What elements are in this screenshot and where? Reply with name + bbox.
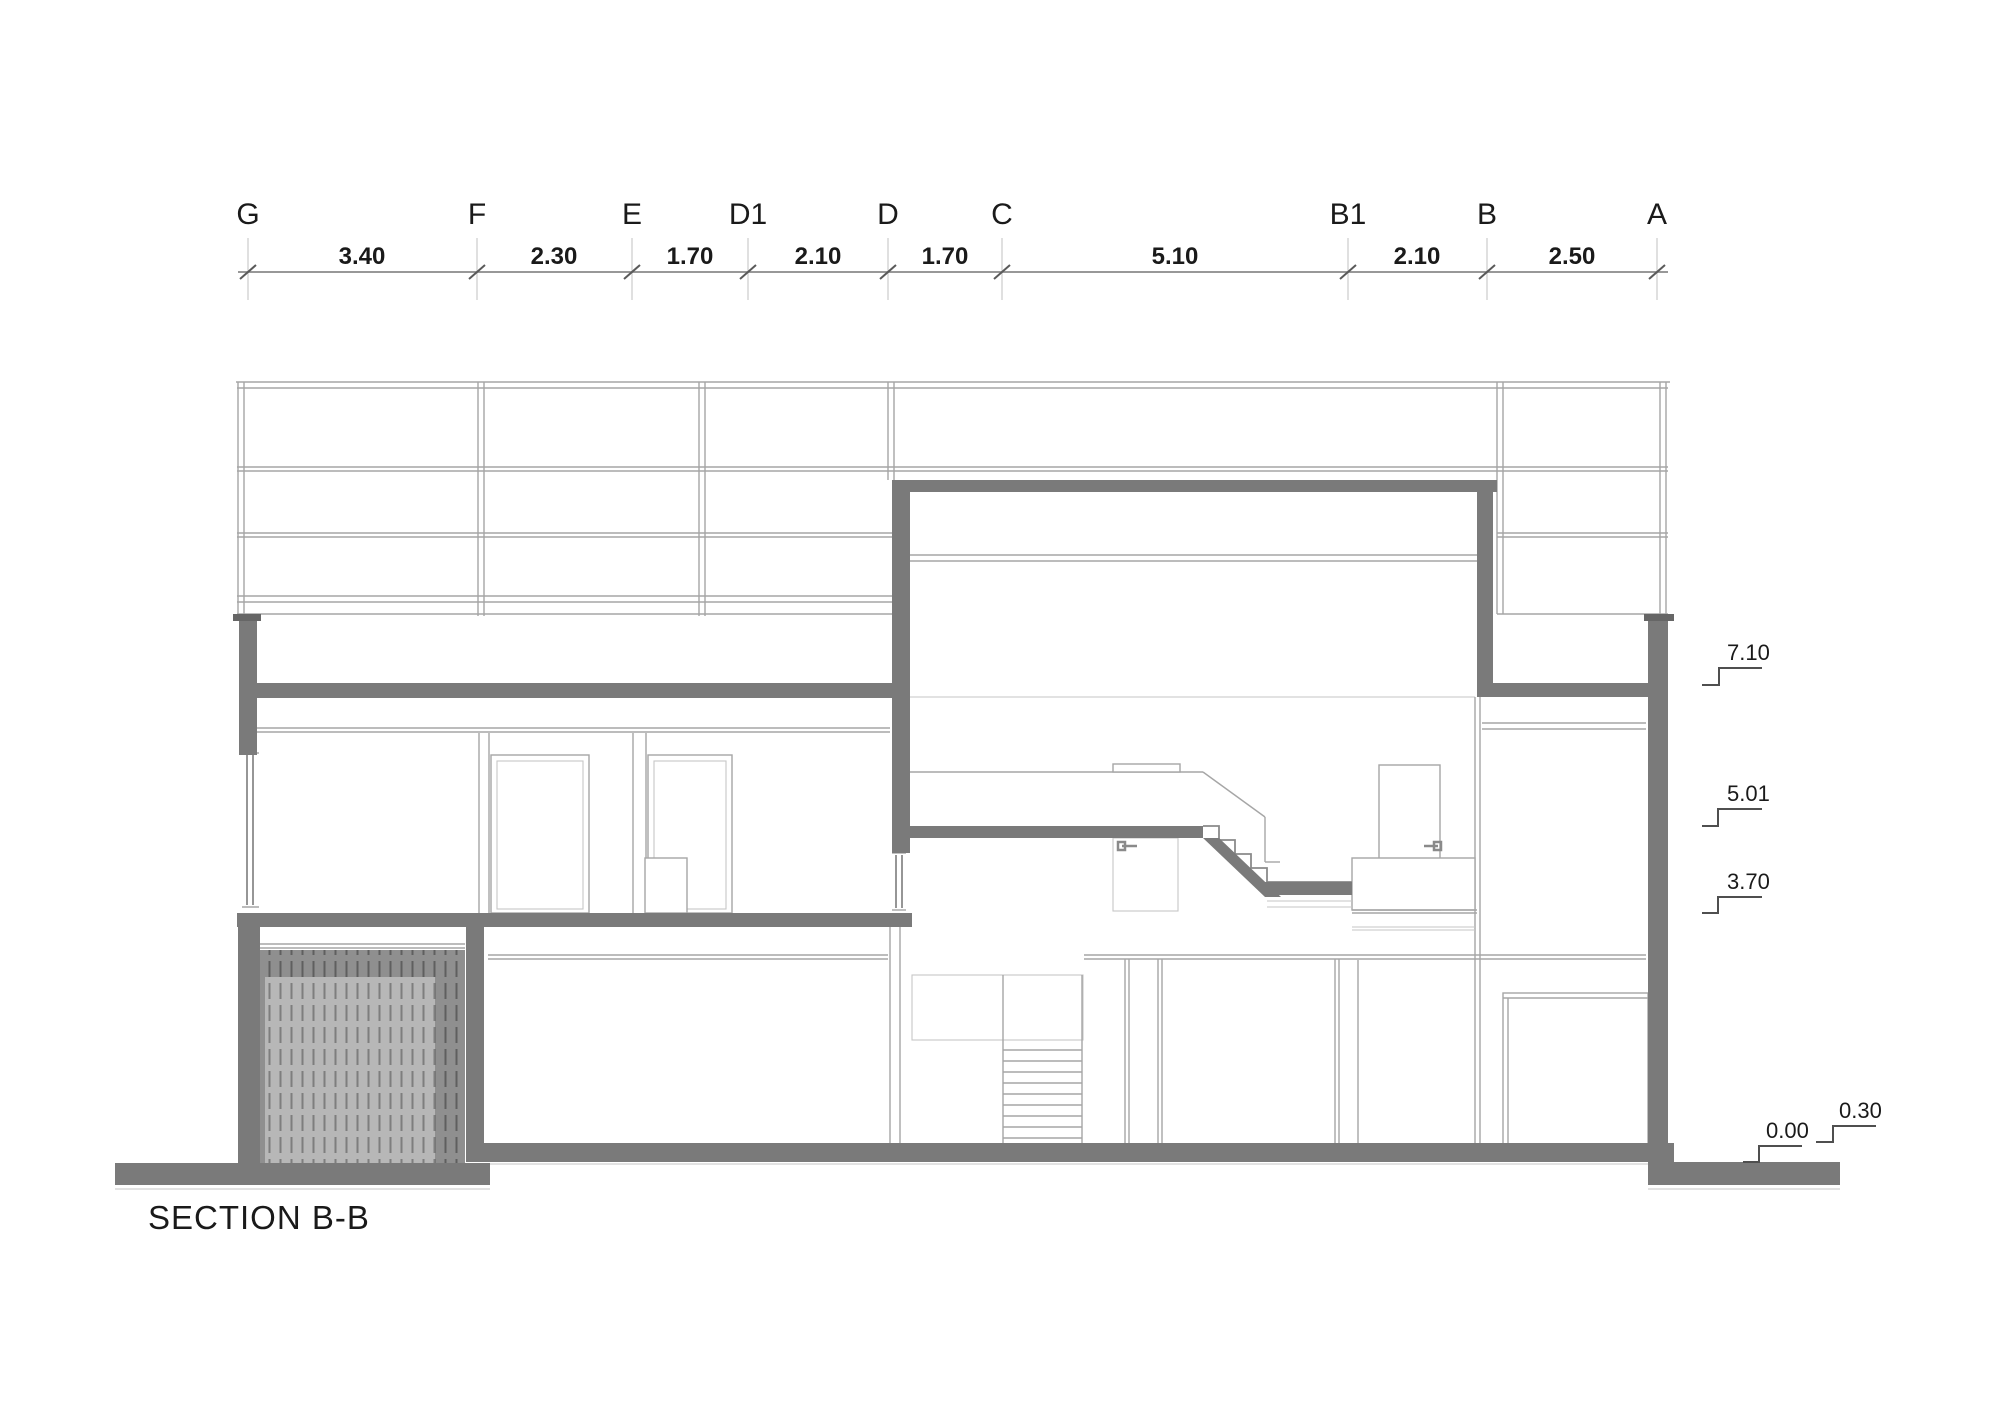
level-marker-000: 0.00 <box>1743 1118 1809 1162</box>
stair-opening <box>912 975 1083 1040</box>
parapet-cap <box>1113 764 1180 772</box>
upper-glazing-grid <box>236 382 1670 618</box>
grid-label-b1: B1 <box>1330 198 1367 231</box>
drawing-title: SECTION B-B <box>148 1199 370 1236</box>
stair-landing-slab <box>1265 882 1352 895</box>
level-marker-370: 3.70 <box>1702 869 1770 913</box>
counter-bedroom <box>1352 858 1475 910</box>
right-parapet-cap <box>1644 614 1674 621</box>
level-value: 0.00 <box>1766 1118 1809 1143</box>
right-parapet-wall <box>1648 621 1668 683</box>
level-value: 3.70 <box>1727 869 1770 894</box>
grid-label-b: B <box>1477 198 1497 231</box>
level-value: 0.30 <box>1839 1098 1882 1123</box>
dim-f-e: 2.30 <box>531 243 578 270</box>
garage-right-wall <box>466 925 484 1143</box>
box-roof-band <box>892 480 1497 492</box>
dim-b-a: 2.50 <box>1549 243 1596 270</box>
dim-d-c: 1.70 <box>922 243 969 270</box>
dim-c-b1: 5.10 <box>1152 243 1199 270</box>
stairs <box>910 764 1352 1143</box>
level-value: 7.10 <box>1727 640 1770 665</box>
level-markers: 7.10 5.01 3.70 0.00 0.30 <box>1702 640 1882 1162</box>
level-marker-710: 7.10 <box>1702 640 1770 685</box>
grid-label-f: F <box>468 198 486 231</box>
grid-label-d1: D1 <box>729 198 767 231</box>
slab-501 <box>910 826 1203 838</box>
grid-label-c: C <box>991 198 1013 231</box>
left-wall-lower <box>238 927 260 1163</box>
garage-wall-foot <box>466 1143 490 1162</box>
left-parapet-cap <box>233 614 261 621</box>
stair-steps-lower <box>1003 975 1082 1143</box>
grid-label-a: A <box>1647 198 1667 231</box>
slab-370 <box>237 913 912 927</box>
dim-b1-b: 2.10 <box>1394 243 1441 270</box>
ground-apron-left <box>115 1163 490 1185</box>
door-behind-stair <box>1113 838 1178 911</box>
right-wall-foot <box>1648 1143 1674 1162</box>
door-level370-left <box>491 755 589 913</box>
window-ground-right <box>1503 993 1648 1160</box>
box-left-wall <box>892 492 910 853</box>
dimension-strip: G F E D1 D C B1 B A 3.40 2.30 1.70 2.10 … <box>236 198 1668 300</box>
grid-labels: G F E D1 D C B1 B A <box>236 198 1667 231</box>
stair-railing-slope <box>1203 772 1265 817</box>
dimension-values: 3.40 2.30 1.70 2.10 1.70 5.10 2.10 2.50 <box>339 243 1596 270</box>
dim-g-f: 3.40 <box>339 243 386 270</box>
ground-apron-right <box>1648 1162 1840 1185</box>
slab-710 <box>239 683 892 698</box>
grid-label-d: D <box>877 198 899 231</box>
grid-label-e: E <box>622 198 642 231</box>
door-handle-icon <box>1118 842 1137 850</box>
right-wall <box>1648 697 1668 1143</box>
slab-710-right <box>1477 683 1668 697</box>
dim-e-d1: 1.70 <box>667 243 714 270</box>
cabinet-level370 <box>645 858 687 913</box>
architectural-section-sheet: G F E D1 D C B1 B A 3.40 2.30 1.70 2.10 … <box>0 0 2000 1413</box>
garage-hatch <box>260 944 465 1163</box>
box-right-wall <box>1477 492 1493 683</box>
section-drawing: G F E D1 D C B1 B A 3.40 2.30 1.70 2.10 … <box>0 0 2000 1413</box>
dim-d1-d: 2.10 <box>795 243 842 270</box>
level-value: 5.01 <box>1727 781 1770 806</box>
ground-slab-interior <box>490 1143 1648 1162</box>
level-marker-501: 5.01 <box>1702 781 1770 826</box>
door-handle-icon <box>1424 842 1441 850</box>
level-marker-030: 0.30 <box>1816 1098 1882 1142</box>
grid-label-g: G <box>236 198 259 231</box>
